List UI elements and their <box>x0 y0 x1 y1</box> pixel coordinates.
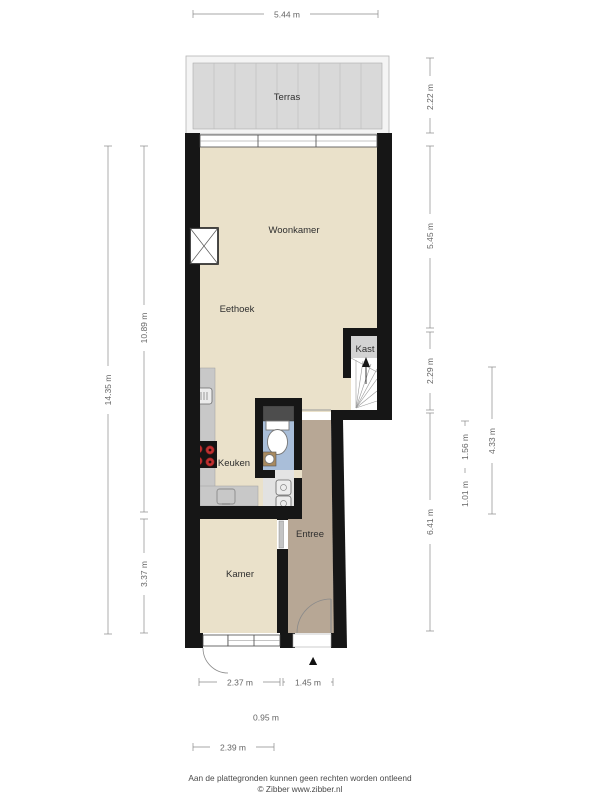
footer-disclaimer: Aan de plattegronden kunnen geen rechten… <box>188 773 412 783</box>
kamer-exterior-door <box>203 635 228 673</box>
toilet-room <box>263 406 294 470</box>
wall-left <box>185 133 200 648</box>
dimension-right-inner-lower: 1.01 m <box>459 473 471 515</box>
dimension-left-upper: 10.89 m <box>138 146 150 512</box>
room-label-kamer: Kamer <box>226 569 254 580</box>
toilet-icon <box>266 421 289 455</box>
entrance-marker-icon: ▲ <box>306 652 320 668</box>
dimension-right-stairs: 2.29 m <box>424 332 436 410</box>
floors <box>200 147 377 633</box>
svg-text:6.41 m: 6.41 m <box>425 509 435 535</box>
svg-text:14.35 m: 14.35 m <box>103 375 113 406</box>
wall-bottom-right <box>331 633 346 648</box>
room-label-kast: Kast <box>355 344 374 355</box>
wall-toilet-left <box>255 398 263 478</box>
entree-inner-door <box>277 520 288 549</box>
wall-notch <box>331 410 392 420</box>
wall-toilet-right <box>294 398 302 470</box>
svg-text:5.44 m: 5.44 m <box>274 10 300 20</box>
svg-text:1.01 m: 1.01 m <box>460 481 470 507</box>
wall-bottom-left <box>185 633 203 648</box>
svg-text:1.45 m: 1.45 m <box>295 678 321 688</box>
dimension-left-lower: 3.37 m <box>138 519 150 633</box>
svg-text:3.37 m: 3.37 m <box>139 561 149 587</box>
dimension-right-terrace: 2.22 m <box>424 58 436 133</box>
toilet-door-opening <box>275 470 294 478</box>
dimension-bottom-lower: 2.39 m <box>193 741 274 753</box>
svg-text:4.33 m: 4.33 m <box>487 428 497 454</box>
door-swing-arc <box>203 648 228 673</box>
svg-text:1.56 m: 1.56 m <box>460 434 470 460</box>
dimension-bottom-door: 0.95 m <box>243 711 289 723</box>
dimension-right-lower: 6.41 m <box>424 413 436 631</box>
svg-text:0.95 m: 0.95 m <box>253 713 279 723</box>
footer-credit: © Zibber www.zibber.nl <box>258 784 343 794</box>
floorplan-canvas: Terras Woonkamer Eethoek Kast Keuken Ent… <box>0 0 600 800</box>
svg-text:10.89 m: 10.89 m <box>139 313 149 344</box>
terrace-window <box>200 135 377 147</box>
washer-icon <box>276 480 291 495</box>
dimension-left-total: 14.35 m <box>102 146 114 634</box>
room-label-entree: Entree <box>296 529 324 540</box>
dimension-right-inner-total: 4.33 m <box>486 367 498 514</box>
svg-text:2.22 m: 2.22 m <box>425 84 435 110</box>
toilet-cabinet <box>263 406 294 421</box>
wall-closet-right <box>294 478 302 513</box>
dimension-bottom-kamer: 2.37 m <box>199 676 280 688</box>
dimension-top-width: 5.44 m <box>193 8 378 20</box>
kamer-window <box>228 635 280 646</box>
room-label-eethoek: Eethoek <box>220 304 255 315</box>
dimension-bottom-entree: 1.45 m <box>283 676 333 688</box>
footer: Aan de plattegronden kunnen geen rechten… <box>188 773 412 794</box>
svg-text:5.45 m: 5.45 m <box>425 223 435 249</box>
corner-sink-icon <box>263 452 276 466</box>
room-label-terras: Terras <box>274 92 301 103</box>
chimney-icon <box>190 228 218 264</box>
wall-kast-left <box>343 328 351 378</box>
svg-text:2.29 m: 2.29 m <box>425 358 435 384</box>
wall-toilet-bottom <box>255 470 275 478</box>
room-label-woonkamer: Woonkamer <box>268 225 319 236</box>
wall-right-upper <box>377 133 392 420</box>
svg-text:2.39 m: 2.39 m <box>220 743 246 753</box>
dimension-right-inner-upper: 1.56 m <box>459 421 471 474</box>
wall-kamer-top <box>185 506 288 519</box>
svg-text:2.37 m: 2.37 m <box>227 678 253 688</box>
dimension-right-woonkamer: 5.45 m <box>424 146 436 328</box>
room-label-keuken: Keuken <box>218 458 250 469</box>
